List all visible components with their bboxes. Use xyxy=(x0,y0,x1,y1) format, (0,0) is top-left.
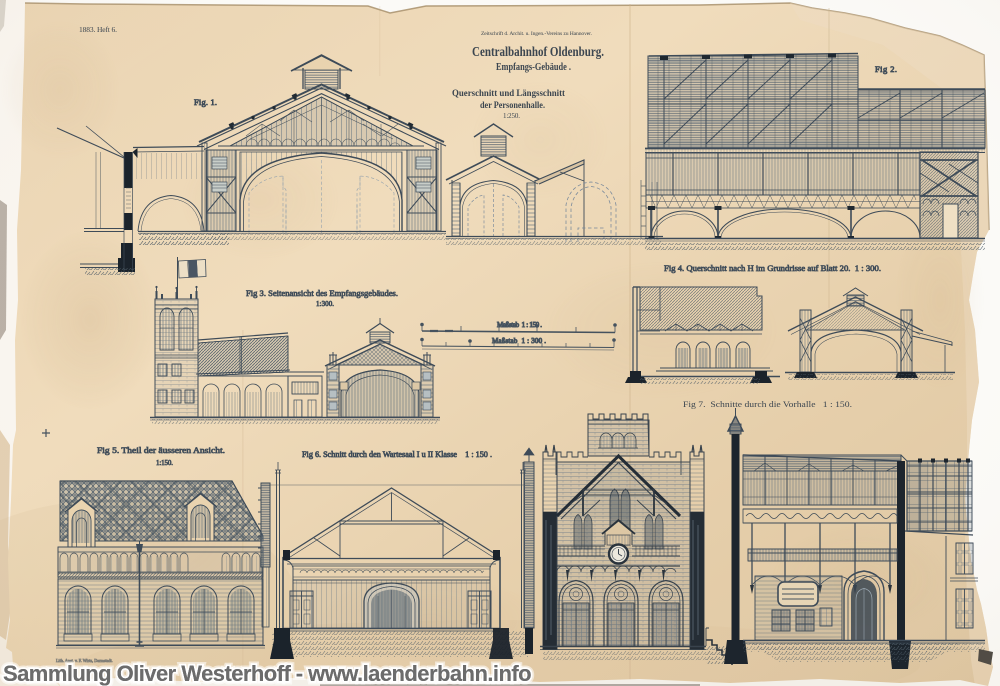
svg-text:1:300.: 1:300. xyxy=(316,300,334,308)
svg-text:1:250.: 1:250. xyxy=(503,112,520,120)
svg-text:Fig 7. Schnitte durch die Vor: Fig 7. Schnitte durch die Vorhalle 1 : 1… xyxy=(683,399,852,409)
svg-text:Fig 2.: Fig 2. xyxy=(875,64,897,74)
svg-text:Fig 6. Schnitt durch den Warte: Fig 6. Schnitt durch den Wartesaal I u I… xyxy=(302,449,492,459)
svg-text:Zeitschrift d. Archit. u. Inge: Zeitschrift d. Archit. u. Ingen.-Vereins… xyxy=(481,30,593,37)
svg-text:Centralbahnhof Oldenburg.: Centralbahnhof Oldenburg. xyxy=(472,45,604,60)
svg-text:Empfangs-Gebäude .: Empfangs-Gebäude . xyxy=(496,62,571,73)
svg-text:Maßstab 1 : 150 .: Maßstab 1 : 150 . xyxy=(497,321,542,329)
svg-text:Querschnitt und Längsschnitt: Querschnitt und Längsschnitt xyxy=(452,89,566,99)
svg-text:Fig 4. Querschnitt nach H im G: Fig 4. Querschnitt nach H im Grundrisse … xyxy=(664,263,881,273)
svg-text:Sammlung Oliver Westerhoff - w: Sammlung Oliver Westerhoff - www.laender… xyxy=(3,661,531,686)
svg-text:1:150.: 1:150. xyxy=(156,459,173,467)
svg-text:Fig 5. Theil der äusseren Ansi: Fig 5. Theil der äusseren Ansicht. xyxy=(97,445,225,455)
svg-text:1883. Heft 6.: 1883. Heft 6. xyxy=(79,25,117,34)
svg-text:Fig 3. Seitenansicht des Empfa: Fig 3. Seitenansicht des Empfangsgebäude… xyxy=(246,288,398,298)
svg-text:der Personenhalle.: der Personenhalle. xyxy=(480,101,545,111)
svg-text:Fig. 1.: Fig. 1. xyxy=(194,97,217,107)
svg-text:Maßstab 1 : 300 .: Maßstab 1 : 300 . xyxy=(492,337,546,345)
